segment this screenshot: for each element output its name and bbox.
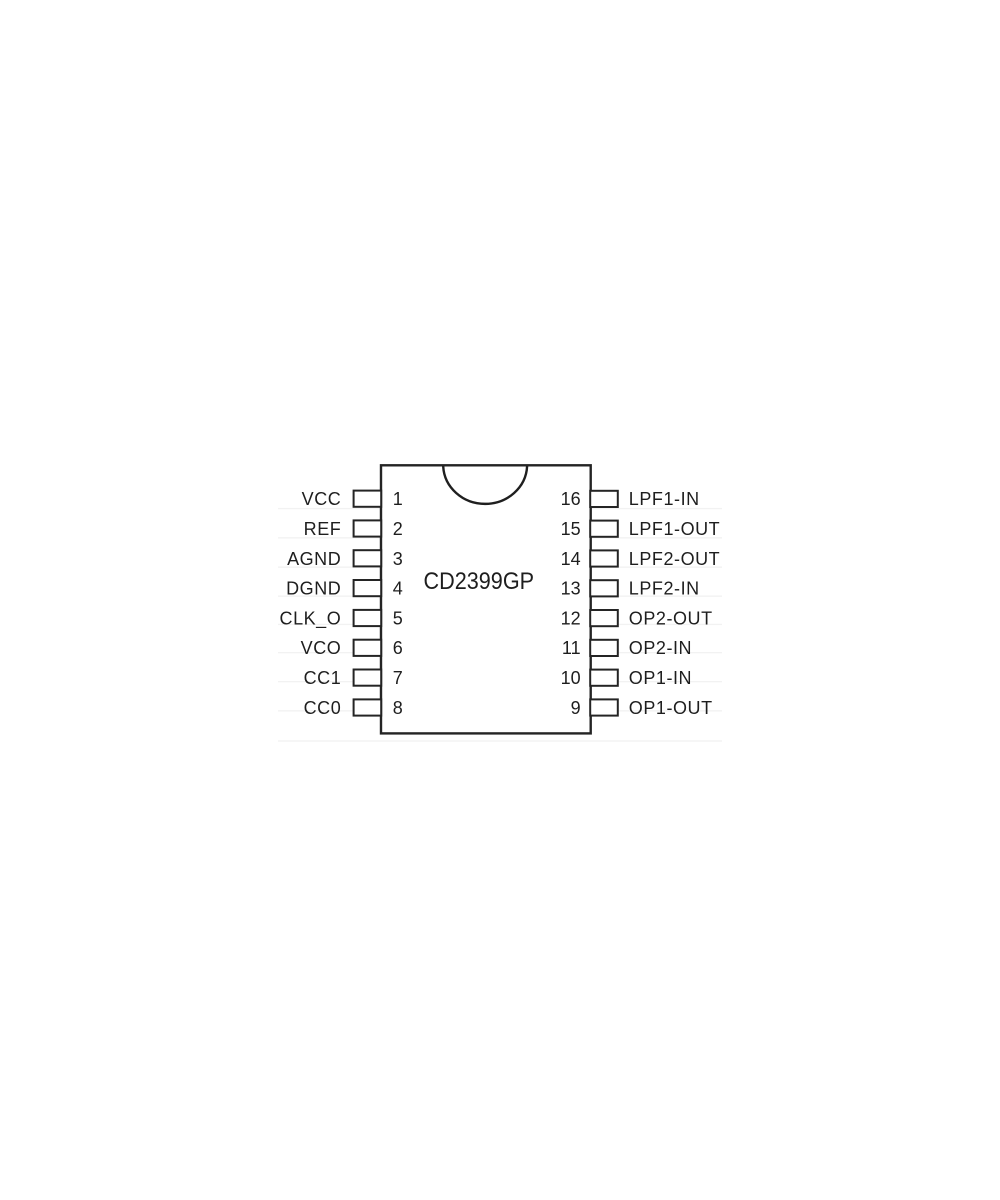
svg-text:8: 8 [393,698,403,718]
svg-text:16: 16 [561,489,581,509]
svg-text:VCO: VCO [301,638,342,658]
svg-text:10: 10 [561,668,581,688]
svg-text:12: 12 [561,608,581,628]
svg-text:3: 3 [393,549,403,569]
svg-text:2: 2 [393,519,403,539]
svg-text:4: 4 [393,579,403,599]
svg-text:9: 9 [571,698,581,718]
svg-text:5: 5 [393,608,403,628]
svg-text:CD2399GP: CD2399GP [424,568,535,595]
svg-text:OP2-IN: OP2-IN [629,638,692,658]
svg-text:OP2-OUT: OP2-OUT [629,608,713,628]
svg-text:LPF2-IN: LPF2-IN [629,579,700,599]
svg-text:CLK_O: CLK_O [280,608,342,629]
svg-text:15: 15 [561,519,581,539]
svg-text:1: 1 [393,489,403,509]
svg-text:LPF1-IN: LPF1-IN [629,489,700,509]
svg-text:14: 14 [561,549,581,569]
svg-text:6: 6 [393,638,403,658]
svg-text:REF: REF [304,519,342,539]
svg-text:LPF1-OUT: LPF1-OUT [629,519,720,539]
svg-text:VCC: VCC [302,489,342,509]
svg-text:LPF2-OUT: LPF2-OUT [629,549,720,569]
svg-text:DGND: DGND [286,579,341,599]
svg-text:11: 11 [562,638,581,658]
svg-text:OP1-OUT: OP1-OUT [629,698,713,718]
svg-text:OP1-IN: OP1-IN [629,668,692,688]
svg-text:13: 13 [561,579,581,599]
svg-text:7: 7 [393,668,403,688]
svg-text:CC0: CC0 [304,698,342,718]
svg-text:CC1: CC1 [304,668,342,688]
svg-text:AGND: AGND [287,549,341,569]
